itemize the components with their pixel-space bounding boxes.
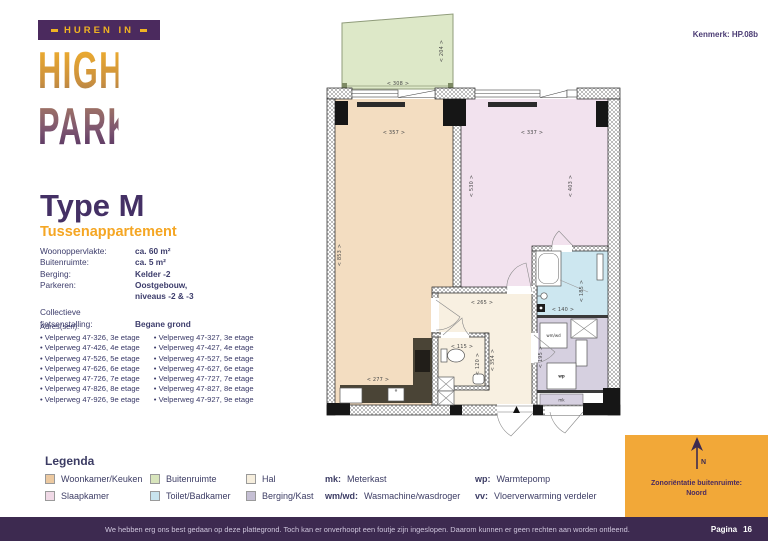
svg-text:< 265 >: < 265 > xyxy=(471,300,494,306)
svg-text:< 337 >: < 337 > xyxy=(521,130,544,136)
north-arrow-icon: N xyxy=(680,435,714,475)
legend-item: Slaapkamer xyxy=(45,491,142,501)
legend-title: Legenda xyxy=(45,454,94,468)
spec-row: niveaus -2 & -3 xyxy=(40,291,280,302)
legend-item: Buitenruimte xyxy=(150,474,231,484)
legend-abbr: mk:Meterkast xyxy=(325,474,460,484)
page-subtitle: Tussenappartement xyxy=(40,224,177,240)
address-item: Velperweg 47-726, 7e etage xyxy=(40,374,140,384)
legend-item: Toilet/Badkamer xyxy=(150,491,231,501)
svg-text:< 140 >: < 140 > xyxy=(552,307,575,313)
page-title: Type M xyxy=(40,188,145,224)
address-item: Velperweg 47-826, 8e etage xyxy=(40,384,140,394)
address-item: Velperweg 47-927, 9e etage xyxy=(154,395,254,405)
address-section: Adres(sen): Velperweg 47-326, 3e etage V… xyxy=(40,322,310,405)
address-item: Velperweg 47-827, 8e etage xyxy=(154,384,254,394)
address-item: Velperweg 47-926, 9e etage xyxy=(40,395,140,405)
logo-word-park: PARK xyxy=(38,100,119,155)
footer: We hebben erg ons best gedaan op deze pl… xyxy=(0,517,768,541)
spec-row: Parkeren:Oostgebouw, xyxy=(40,280,280,291)
svg-text:< 185 >: < 185 > xyxy=(579,280,585,303)
svg-text:< 403 >: < 403 > xyxy=(568,175,574,198)
label-wp: wp xyxy=(558,374,565,379)
legend-item: Hal xyxy=(246,474,314,484)
address-list-right: Velperweg 47-327, 3e etage Velperweg 47-… xyxy=(154,333,254,405)
legend-swatch xyxy=(150,474,160,484)
address-item: Velperweg 47-526, 5e etage xyxy=(40,354,140,364)
legend-swatch xyxy=(246,474,256,484)
brochure-page: HUREN IN HIGH PARK Kenmerk: HP.08b Type … xyxy=(0,0,768,541)
svg-text:< 357 >: < 357 > xyxy=(383,130,406,136)
orientation-box: N Zonoriëntatie buitenruimte: Noord xyxy=(625,435,768,517)
address-header: Adres(sen): xyxy=(40,322,310,331)
logo-word-high: HIGH xyxy=(38,44,119,99)
legend-abbr: wm/wd:Wasmachine/wasdroger xyxy=(325,491,460,501)
svg-text:< 120 >: < 120 > xyxy=(475,353,481,376)
legend-swatch xyxy=(246,491,256,501)
dim-balcony-width: < 308 > xyxy=(387,81,410,87)
address-item: Velperweg 47-427, 4e etage xyxy=(154,343,254,353)
address-item: Velperweg 47-327, 3e etage xyxy=(154,333,254,343)
legend-swatch xyxy=(45,491,55,501)
shower-head xyxy=(541,293,547,299)
spec-table: Woonoppervlakte:ca. 60 m² Buitenruimte:c… xyxy=(40,246,280,330)
logo-banner-text: HUREN IN xyxy=(64,25,134,36)
orientation-label: Zonoriëntatie buitenruimte: Noord xyxy=(651,479,742,498)
floor-plan: < 308 > < 204 > xyxy=(310,0,632,460)
svg-text:< 195 >: < 195 > xyxy=(538,346,544,369)
address-item: Velperweg 47-527, 5e etage xyxy=(154,354,254,364)
banner-dash-right xyxy=(140,29,147,32)
address-item: Velperweg 47-627, 6e etage xyxy=(154,364,254,374)
banner-dash-left xyxy=(51,29,58,32)
svg-text:< 277 >: < 277 > xyxy=(367,377,390,383)
legend-item: Woonkamer/Keuken xyxy=(45,474,142,484)
address-item: Velperweg 47-727, 7e etage xyxy=(154,374,254,384)
legend-swatch xyxy=(45,474,55,484)
label-mk: mk xyxy=(558,398,565,403)
appliance xyxy=(340,388,362,403)
radiator xyxy=(597,254,603,280)
label-wmwd: wm/wd xyxy=(546,333,561,338)
page-indicator: Pagina16 xyxy=(705,525,768,534)
footer-disclaimer: We hebben erg ons best gedaan op deze pl… xyxy=(0,525,705,534)
logo-banner: HUREN IN xyxy=(38,20,160,40)
address-item: Velperweg 47-626, 6e etage xyxy=(40,364,140,374)
legend-abbr: vv:Vloerverwarming verdeler xyxy=(475,491,597,501)
legend-item: Berging/Kast xyxy=(246,491,314,501)
kenmerk-label: Kenmerk: HP.08b xyxy=(693,30,758,39)
legend-abbr: wp:Warmtepomp xyxy=(475,474,597,484)
spec-row: Buitenruimte:ca. 5 m² xyxy=(40,257,280,268)
highpark-logo: HUREN IN HIGH PARK xyxy=(38,20,168,155)
svg-text:< 115 >: < 115 > xyxy=(451,344,474,350)
address-item: Velperweg 47-426, 4e etage xyxy=(40,343,140,353)
cabinet xyxy=(576,340,587,366)
svg-text:< 853 >: < 853 > xyxy=(337,244,343,267)
balcony: < 308 > < 204 > xyxy=(342,14,453,89)
dim-balcony-depth: < 204 > xyxy=(439,40,445,63)
cooktop xyxy=(415,350,430,372)
svg-text:N: N xyxy=(701,459,706,466)
spec-row: Berging:Kelder -2 xyxy=(40,269,280,280)
spec-row: Collectieve xyxy=(40,307,280,318)
spec-row: Woonoppervlakte:ca. 60 m² xyxy=(40,246,280,257)
svg-text:< 354 >: < 354 > xyxy=(490,349,496,372)
svg-text:< 530 >: < 530 > xyxy=(469,175,475,198)
address-item: Velperweg 47-326, 3e etage xyxy=(40,333,140,343)
address-list-left: Velperweg 47-326, 3e etage Velperweg 47-… xyxy=(40,333,140,405)
legend-swatch xyxy=(150,491,160,501)
